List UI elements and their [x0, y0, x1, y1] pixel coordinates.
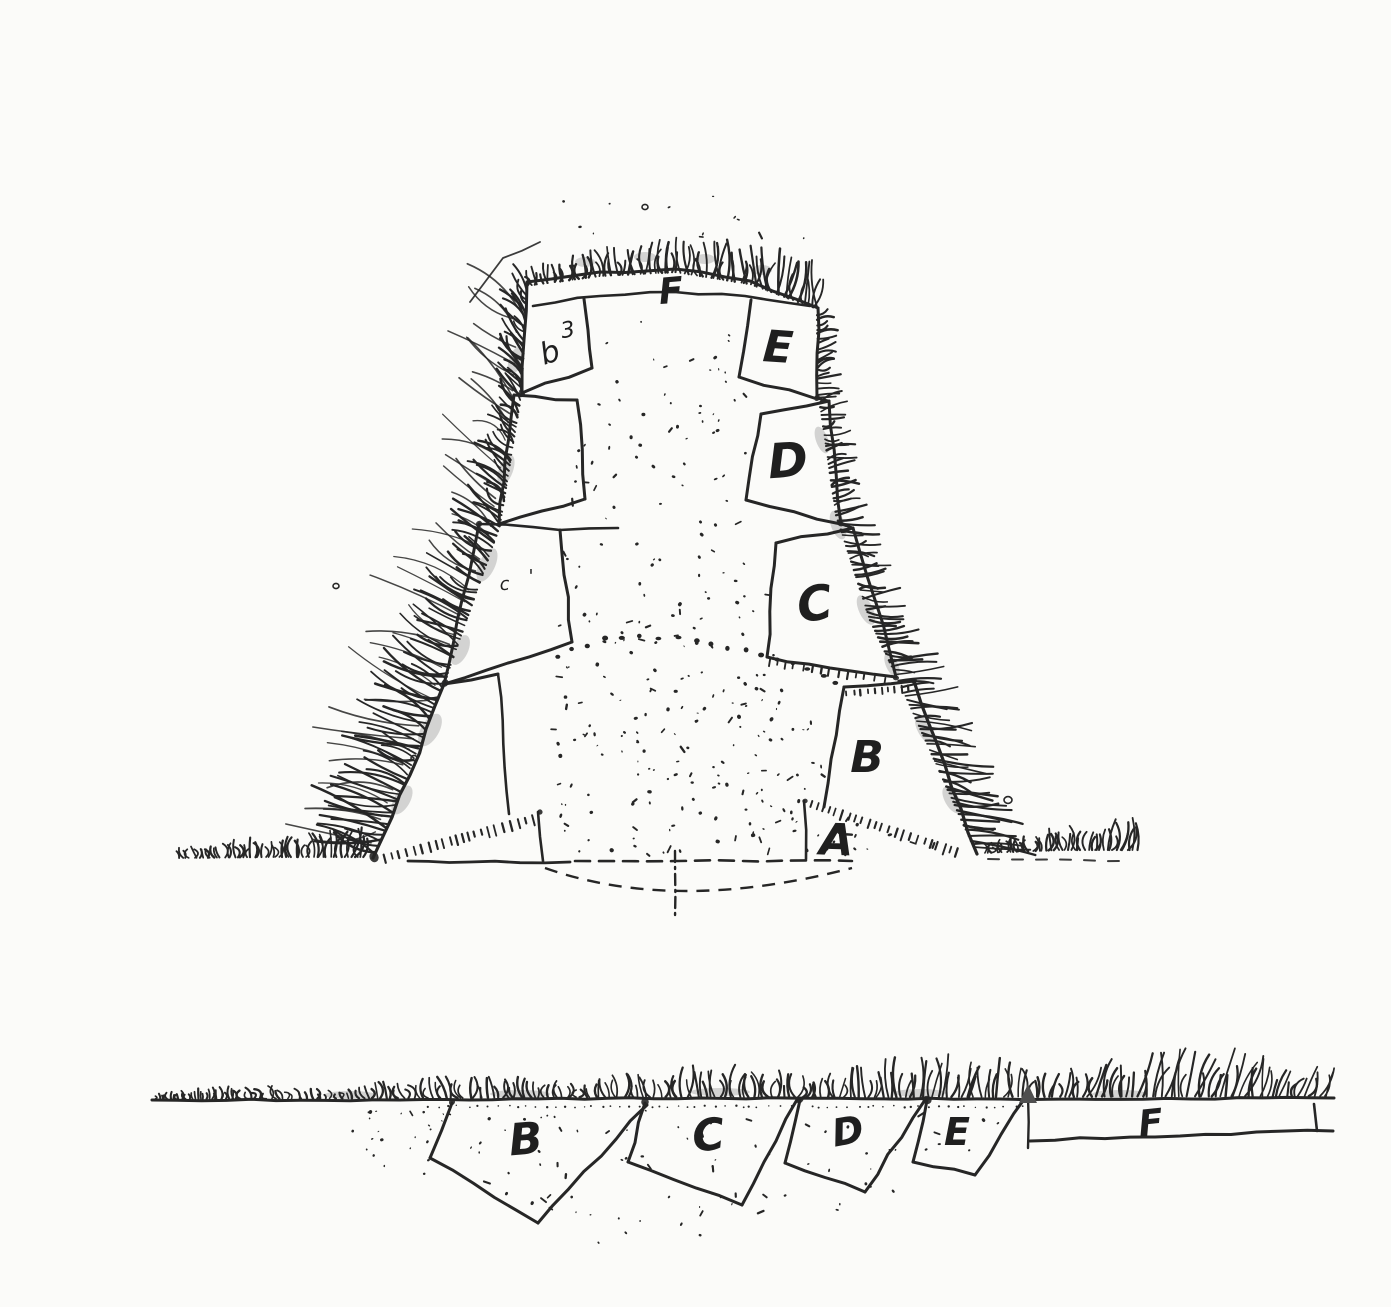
section-label-f: F	[1136, 1102, 1165, 1145]
section-label-c: C	[690, 1109, 727, 1163]
label-cutting-b: B	[850, 732, 884, 783]
label-cutting-e: E	[761, 321, 795, 374]
label-cutting-d: D	[766, 432, 810, 491]
ink-drawing-layer	[152, 196, 1334, 1245]
left-panel-mark-b: b	[536, 333, 565, 372]
label-base-cutting-a: A	[816, 814, 855, 866]
section-label-b: B	[507, 1113, 545, 1167]
left-panel-mark-3: 3	[559, 317, 577, 344]
label-cutting-c: C	[793, 574, 836, 634]
label-summit-cutting-f: F	[657, 270, 685, 313]
section-view-labels: B C D E F	[507, 1102, 1166, 1167]
left-panel-mark-tick: '	[529, 566, 534, 587]
sketch-canvas: F E D C B A b 3 c ' B C D E F	[0, 0, 1391, 1307]
section-label-d: D	[828, 1107, 867, 1156]
section-label-e: E	[944, 1110, 970, 1154]
left-panel-mark-c: c	[499, 574, 511, 596]
mound-excavation-sketch: F E D C B A b 3 c ' B C D E F	[0, 0, 1391, 1307]
